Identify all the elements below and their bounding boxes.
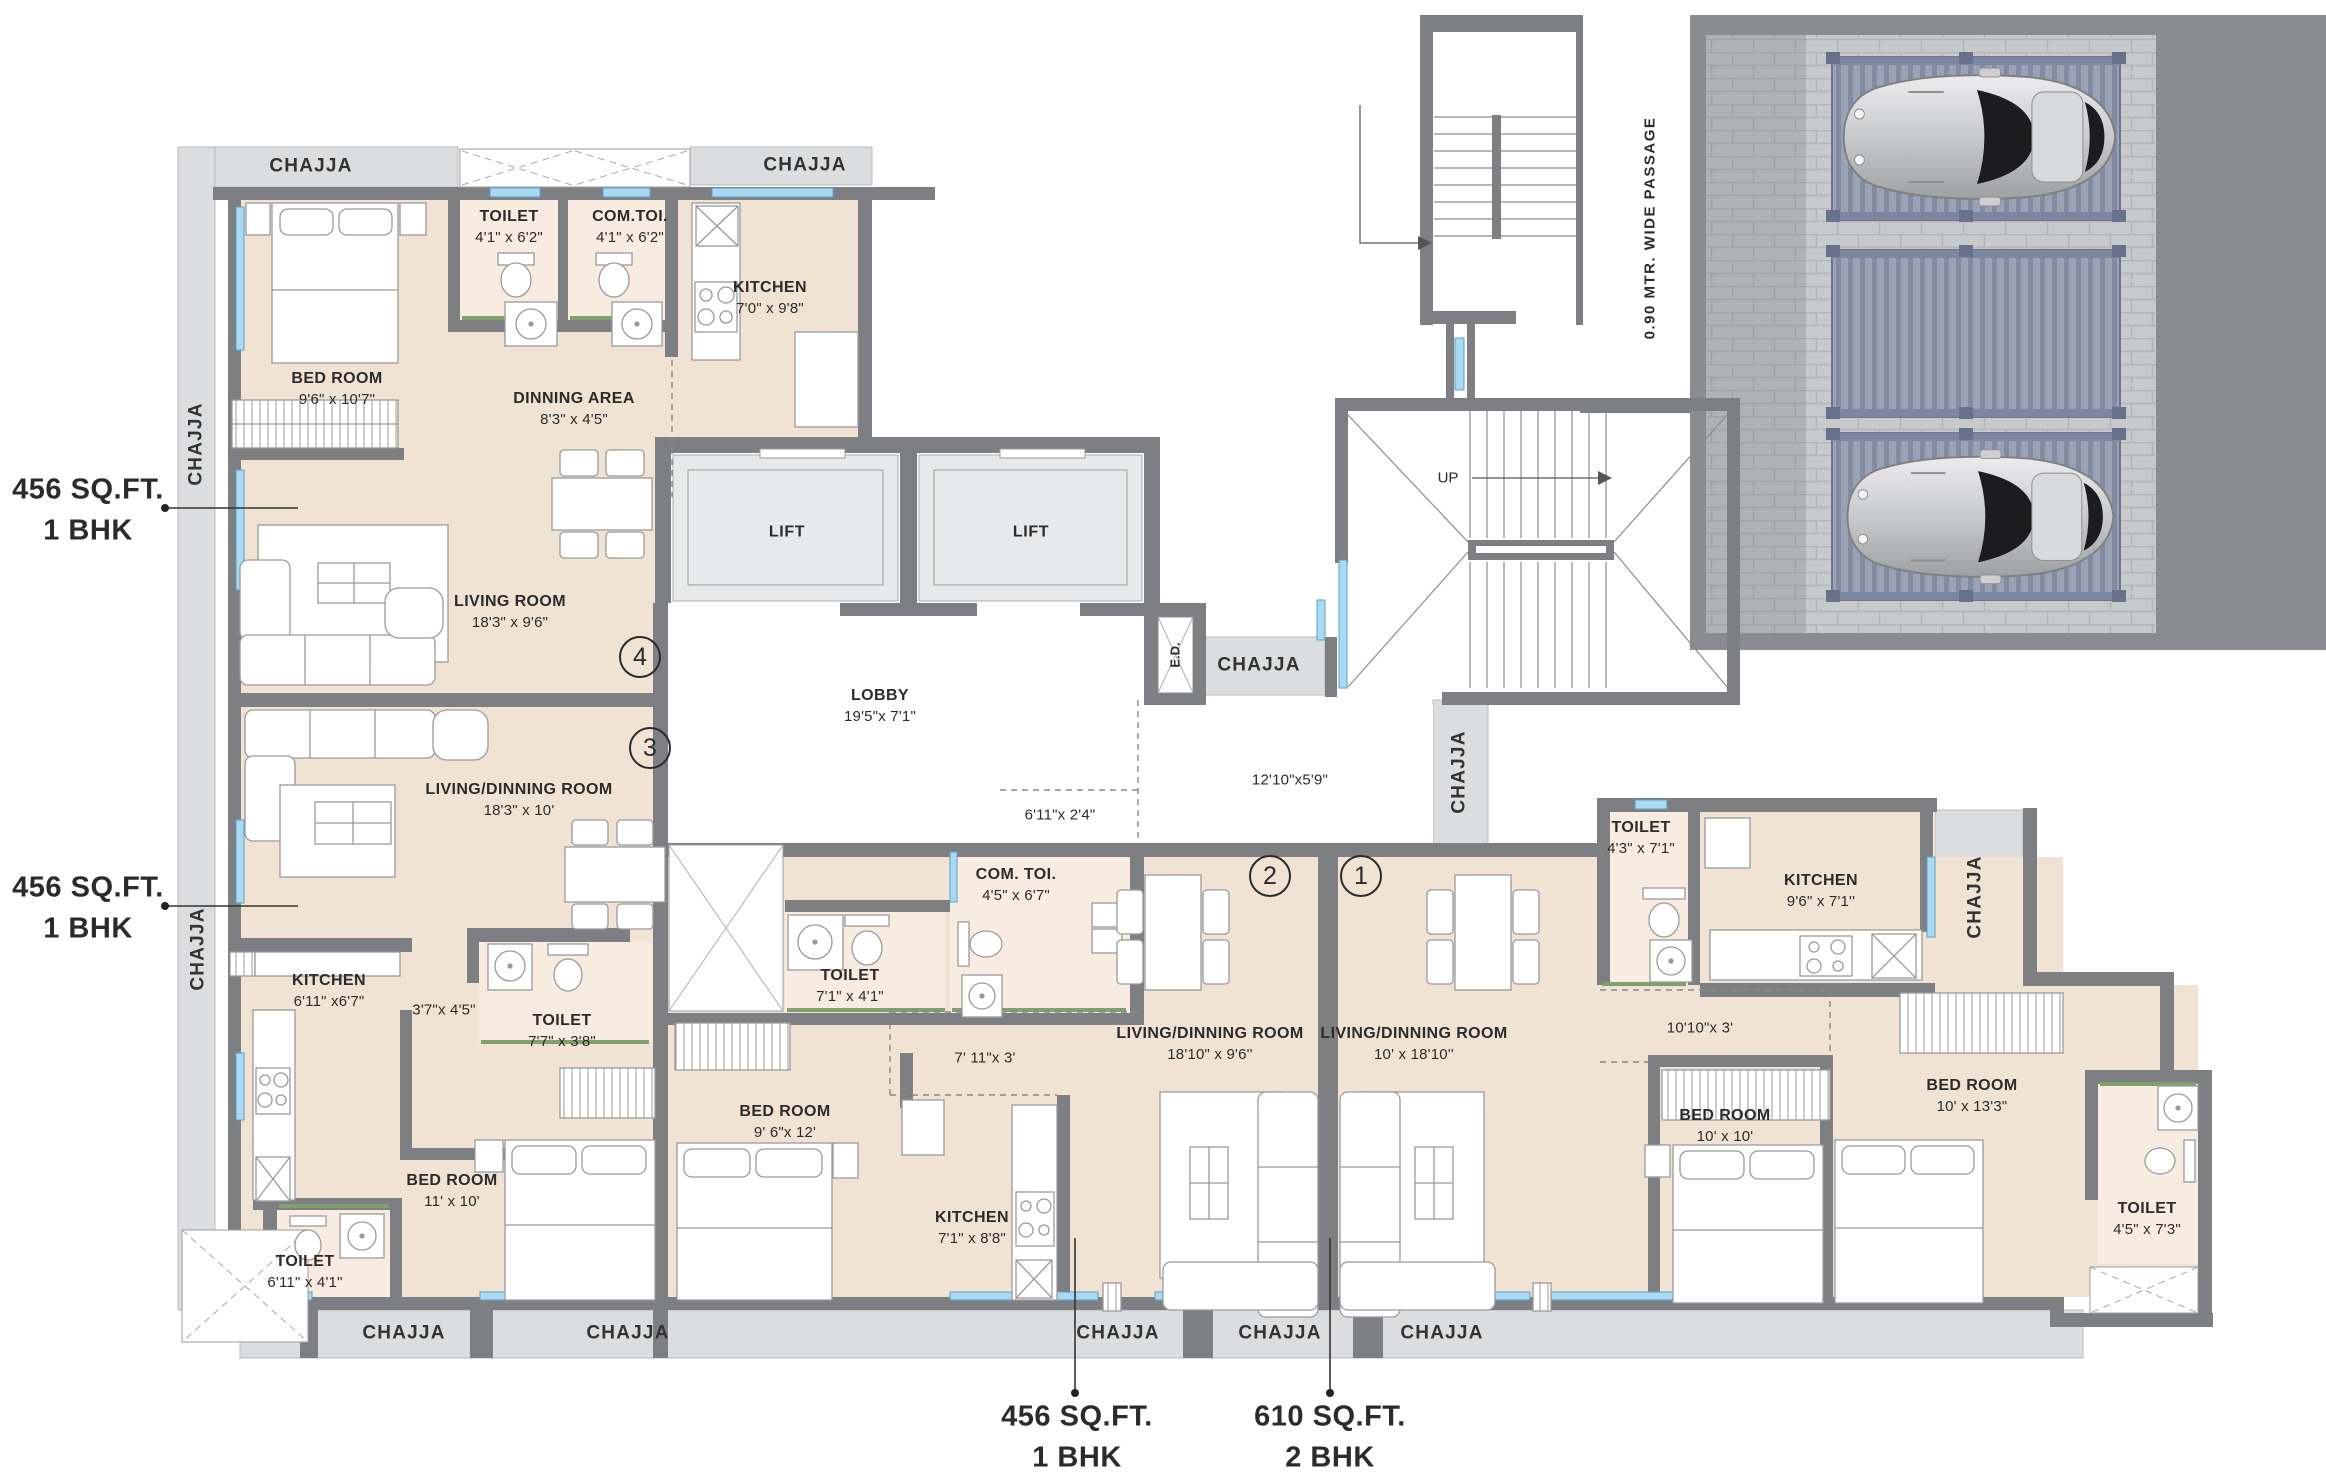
chajja-label: CHAJJA [1076,1322,1159,1347]
area-label-u1: 610 SQ.FT. 2 BHK [1254,1396,1406,1477]
main-staircase [1348,411,1727,688]
unit-number-2: 2 [1249,855,1291,897]
room-label-u3-living: LIVING/DINNING ROOM 18'3" x 10' [419,780,619,820]
floor-plan: CHAJJA CHAJJA CHAJJA CHAJJA CHAJJA CHAJJ… [0,0,2326,1484]
chajja-label: CHAJJA [362,1322,445,1347]
room-label-u1-bedroom2: BED ROOM 10' x 13'3" [1926,1076,2017,1116]
chajja-label: CHAJJA [1400,1322,1483,1347]
room-label-u2-bedroom: BED ROOM 9' 6"x 12' [739,1102,830,1142]
unit-number-4: 4 [619,636,661,678]
small-dim-label: 6'11"x 2'4" [1025,805,1096,825]
dim-label-u3-passage: 3'7"x 4'5" [412,1000,475,1020]
chajja-label: CHAJJA [1448,730,1473,813]
up-label: UP [1438,468,1459,488]
lobby-dim: 19'5"x 7'1" [844,707,916,727]
upper-staircase [1360,105,1576,250]
parking-garage [1690,15,2326,650]
lobby-label: LOBBY 19'5"x 7'1" [844,686,916,726]
unit-number-1: 1 [1340,855,1382,897]
chajja-label: CHAJJA [269,155,352,180]
room-label-u3-kitchen: KITCHEN 6'11" x6'7" [292,971,366,1011]
chajja-label: CHAJJA [763,154,846,179]
room-label-u3-toilet2: TOILET 6'11" x 4'1" [267,1252,342,1292]
dim-label-u1-passage: 10'10"x 3' [1667,1018,1733,1038]
room-label-u1-toilet2: TOILET 4'5" x 7'3" [2113,1199,2181,1239]
chajja-label: CHAJJA [1217,654,1300,679]
room-label-u4-bedroom: BED ROOM 9'6" x 10'7" [291,369,382,409]
room-label-u3-bedroom: BED ROOM 11' x 10' [406,1171,497,1211]
lift-label: LIFT [1013,523,1049,544]
unit-number-3: 3 [629,727,671,769]
chajja-label: CHAJJA [586,1322,669,1347]
chajja-label: CHAJJA [185,402,210,485]
room-label-u3-toilet1: TOILET 7'7" x 3'8" [528,1011,596,1051]
room-label-u4-dining: DINNING AREA 8'3" x 4'5" [513,389,635,429]
room-label-u4-kitchen: KITCHEN 7'0" x 9'8" [733,278,807,318]
area-label-u3: 456 SQ.FT. 1 BHK [12,867,164,948]
chajja-label: CHAJJA [1964,855,1989,938]
lobby-name: LOBBY [844,686,916,707]
room-label-u1-living: LIVING/DINNING ROOM 10' x 18'10'' [1314,1024,1514,1064]
area-label-u2: 456 SQ.FT. 1 BHK [1001,1396,1153,1477]
room-label-u2-kitchen: KITCHEN 7'1" x 8'8" [935,1208,1009,1248]
car-top-view-2 [1848,450,2114,584]
room-label-u4-comtoi: COM.TOI. 4'1" x 6'2" [592,207,668,247]
wc-basin-unit2-toilet [788,915,889,970]
room-label-u1-toilet1: TOILET 4'3" x 7'1" [1607,818,1675,858]
ed-label: E.D. [1168,642,1185,667]
living-unit4 [240,525,448,685]
room-label-u1-kitchen: KITCHEN 9'6" x 7'1'' [1784,871,1858,911]
car-top-view-1 [1844,68,2115,206]
room-label-u1-bedroom1: BED ROOM 10' x 10' [1679,1106,1770,1146]
floor-plan-drawing [0,0,2326,1484]
room-label-u2-comtoi: COM. TOI. 4'5" x 6'7" [976,865,1057,905]
room-label-u2-toilet: TOILET 7'1" x 4'1" [816,966,884,1006]
chajja-label: CHAJJA [1238,1322,1321,1347]
lift-label: LIFT [769,523,805,544]
chajja-label: CHAJJA [187,907,212,990]
passage-label: 0.90 MTR. WIDE PASSAGE [1640,117,1660,340]
room-label-u2-living: LIVING/DINNING ROOM 18'10" x 9'6'' [1110,1024,1310,1064]
room-label-u4-living: LIVING ROOM 18'3" x 9'6" [454,592,566,632]
mid-dim-label: 12'10"x5'9" [1252,770,1328,790]
room-label-u4-toilet: TOILET 4'1" x 6'2" [475,207,543,247]
dim-label-u2-passage: 7' 11"x 3' [954,1048,1015,1068]
area-label-u4: 456 SQ.FT. 1 BHK [12,469,164,550]
